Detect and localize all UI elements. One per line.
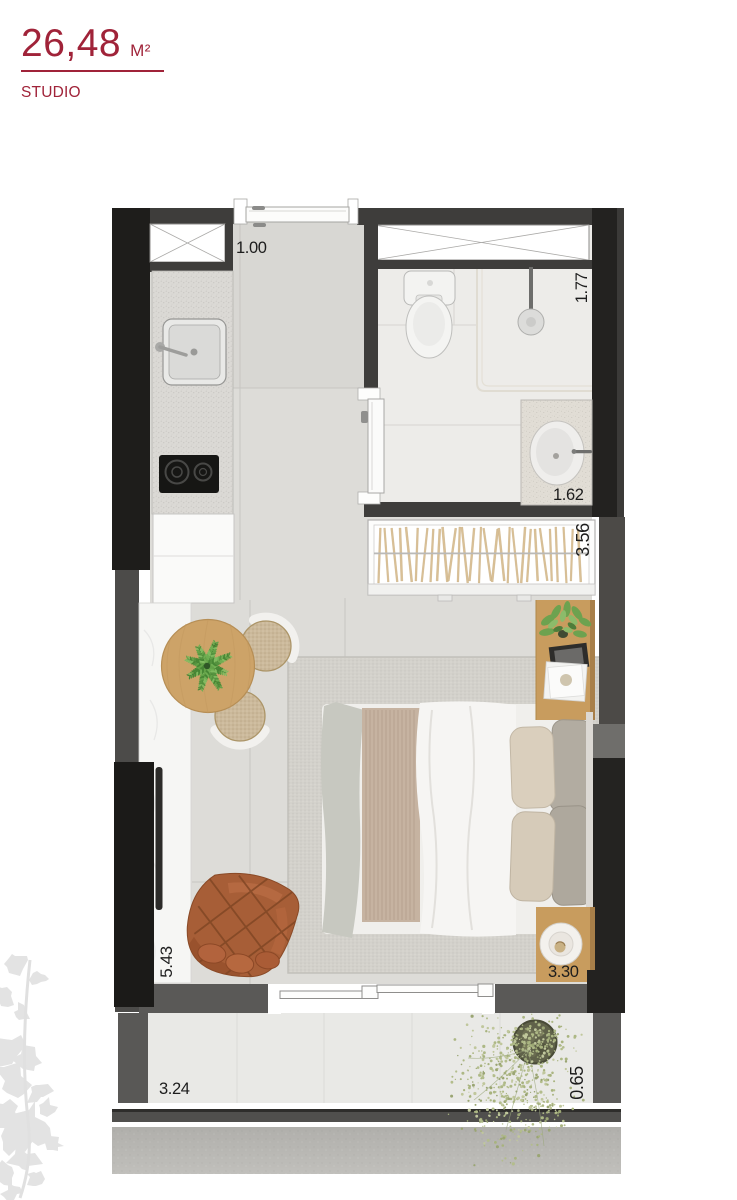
svg-text:0.65: 0.65 [567, 1066, 587, 1100]
svg-text:1.00: 1.00 [236, 239, 267, 257]
svg-text:3.56: 3.56 [573, 523, 593, 557]
svg-text:5.43: 5.43 [157, 946, 176, 978]
svg-text:1.62: 1.62 [553, 486, 584, 504]
svg-text:1.77: 1.77 [573, 273, 591, 304]
svg-text:3.24: 3.24 [159, 1080, 190, 1098]
svg-text:3.30: 3.30 [548, 963, 579, 981]
